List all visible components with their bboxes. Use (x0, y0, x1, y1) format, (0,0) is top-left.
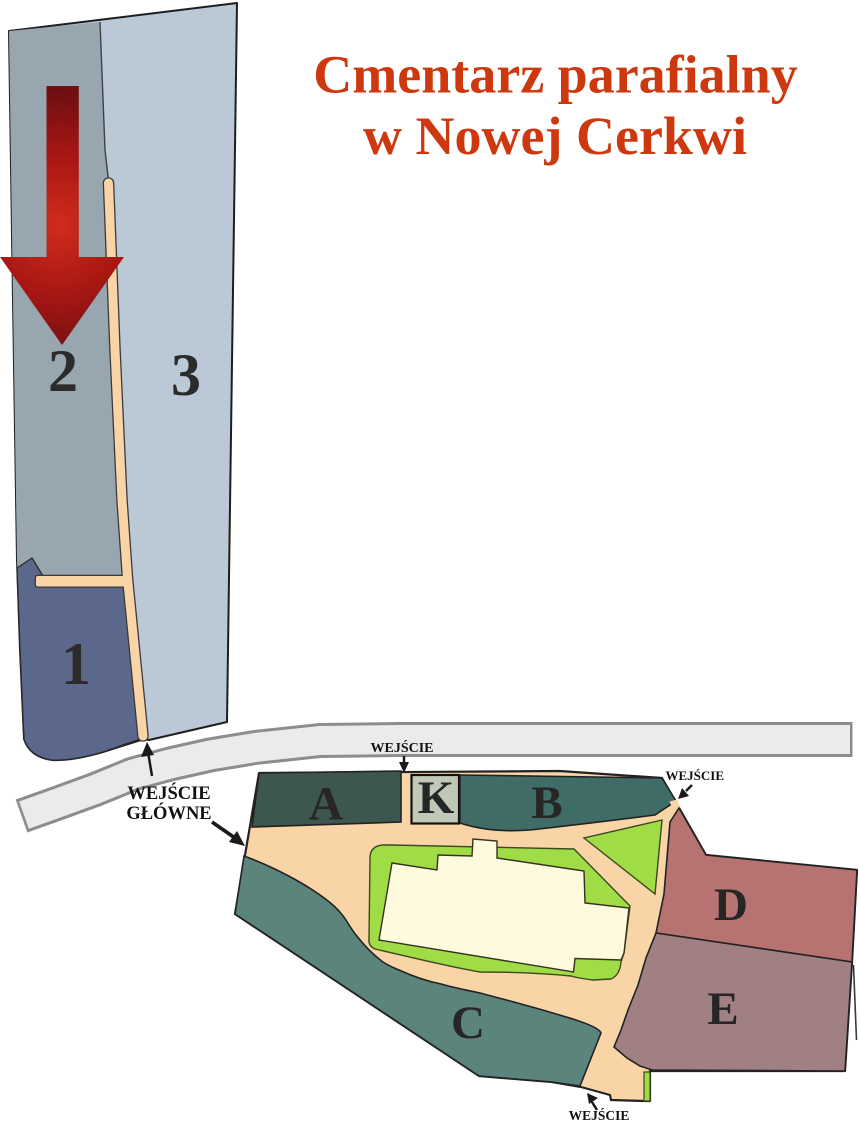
svg-text:3: 3 (171, 342, 201, 408)
svg-text:WEJŚCIE: WEJŚCIE (127, 782, 210, 804)
svg-text:1: 1 (61, 631, 91, 697)
svg-text:GŁÓWNE: GŁÓWNE (126, 802, 211, 824)
svg-text:K: K (418, 772, 455, 824)
svg-text:E: E (707, 983, 738, 1035)
svg-text:WEJŚCIE: WEJŚCIE (569, 1108, 630, 1122)
svg-text:Cmentarz parafialny: Cmentarz parafialny (313, 45, 797, 105)
svg-text:C: C (451, 997, 485, 1049)
svg-text:B: B (531, 777, 562, 829)
svg-text:WEJŚCIE: WEJŚCIE (370, 739, 433, 756)
svg-text:D: D (714, 879, 748, 931)
svg-text:2: 2 (48, 338, 78, 404)
svg-text:w Nowej Cerkwi: w Nowej Cerkwi (363, 106, 747, 166)
svg-text:A: A (309, 778, 344, 831)
svg-text:WEJŚCIE: WEJŚCIE (665, 768, 724, 783)
